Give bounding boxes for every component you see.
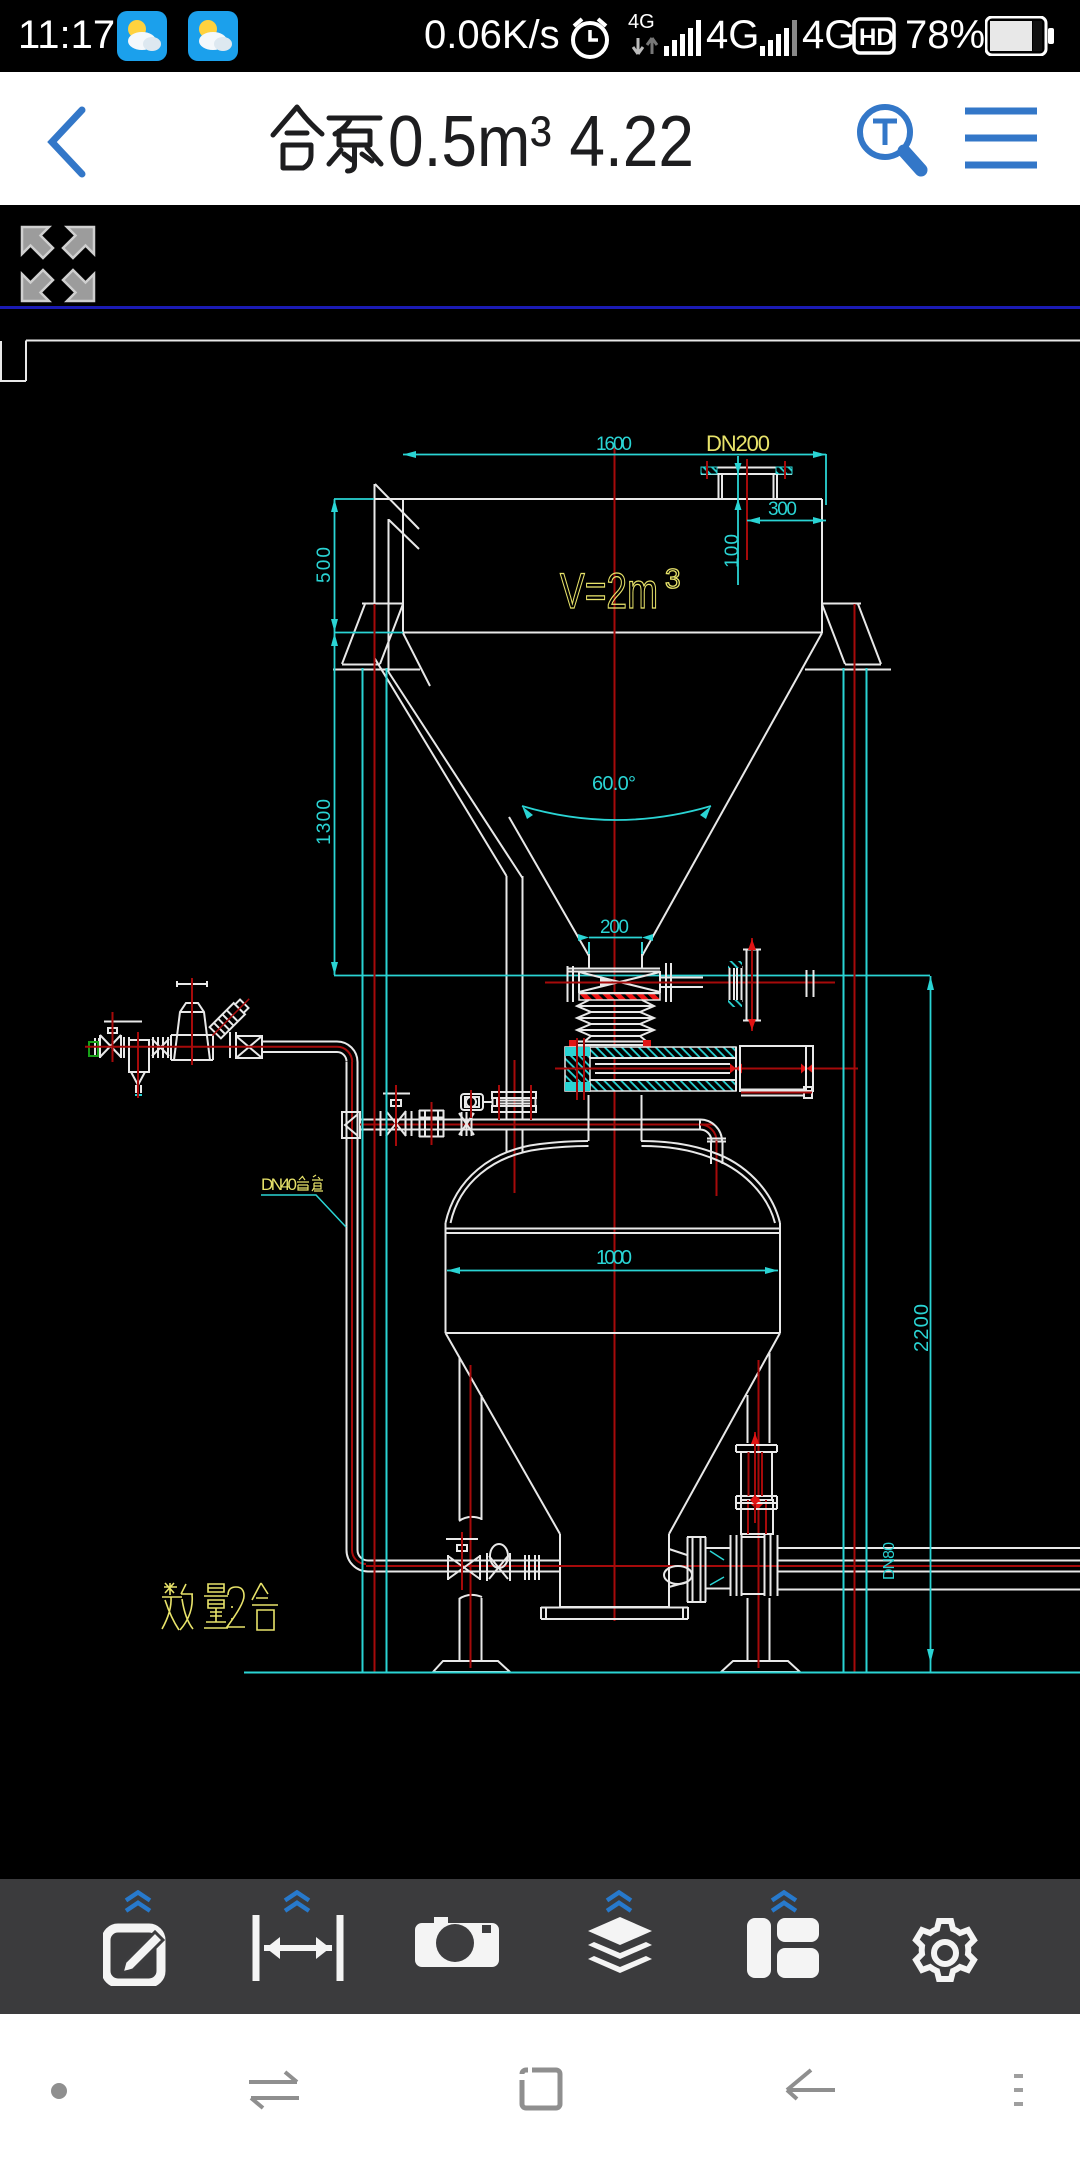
svg-text:DN40: DN40 <box>261 1175 297 1194</box>
svg-text:1300: 1300 <box>314 799 335 845</box>
svg-text:60.0°: 60.0° <box>592 773 636 795</box>
svg-text:4G: 4G <box>628 11 655 33</box>
svg-text:3: 3 <box>665 563 681 594</box>
svg-text:1600: 1600 <box>596 434 632 455</box>
svg-text:HD: HD <box>859 24 894 51</box>
svg-text:DN200: DN200 <box>706 431 770 456</box>
svg-text:V=2m: V=2m <box>560 563 658 619</box>
svg-text:1000: 1000 <box>596 1247 632 1269</box>
svg-text:200: 200 <box>600 917 629 938</box>
svg-text:100: 100 <box>722 534 743 568</box>
svg-text:2200: 2200 <box>911 1304 933 1352</box>
svg-text:DN80: DN80 <box>881 1542 898 1580</box>
svg-text:300: 300 <box>768 499 797 520</box>
svg-text:500: 500 <box>314 547 335 583</box>
svg-text:0.5m³ 4.22: 0.5m³ 4.22 <box>388 102 694 182</box>
